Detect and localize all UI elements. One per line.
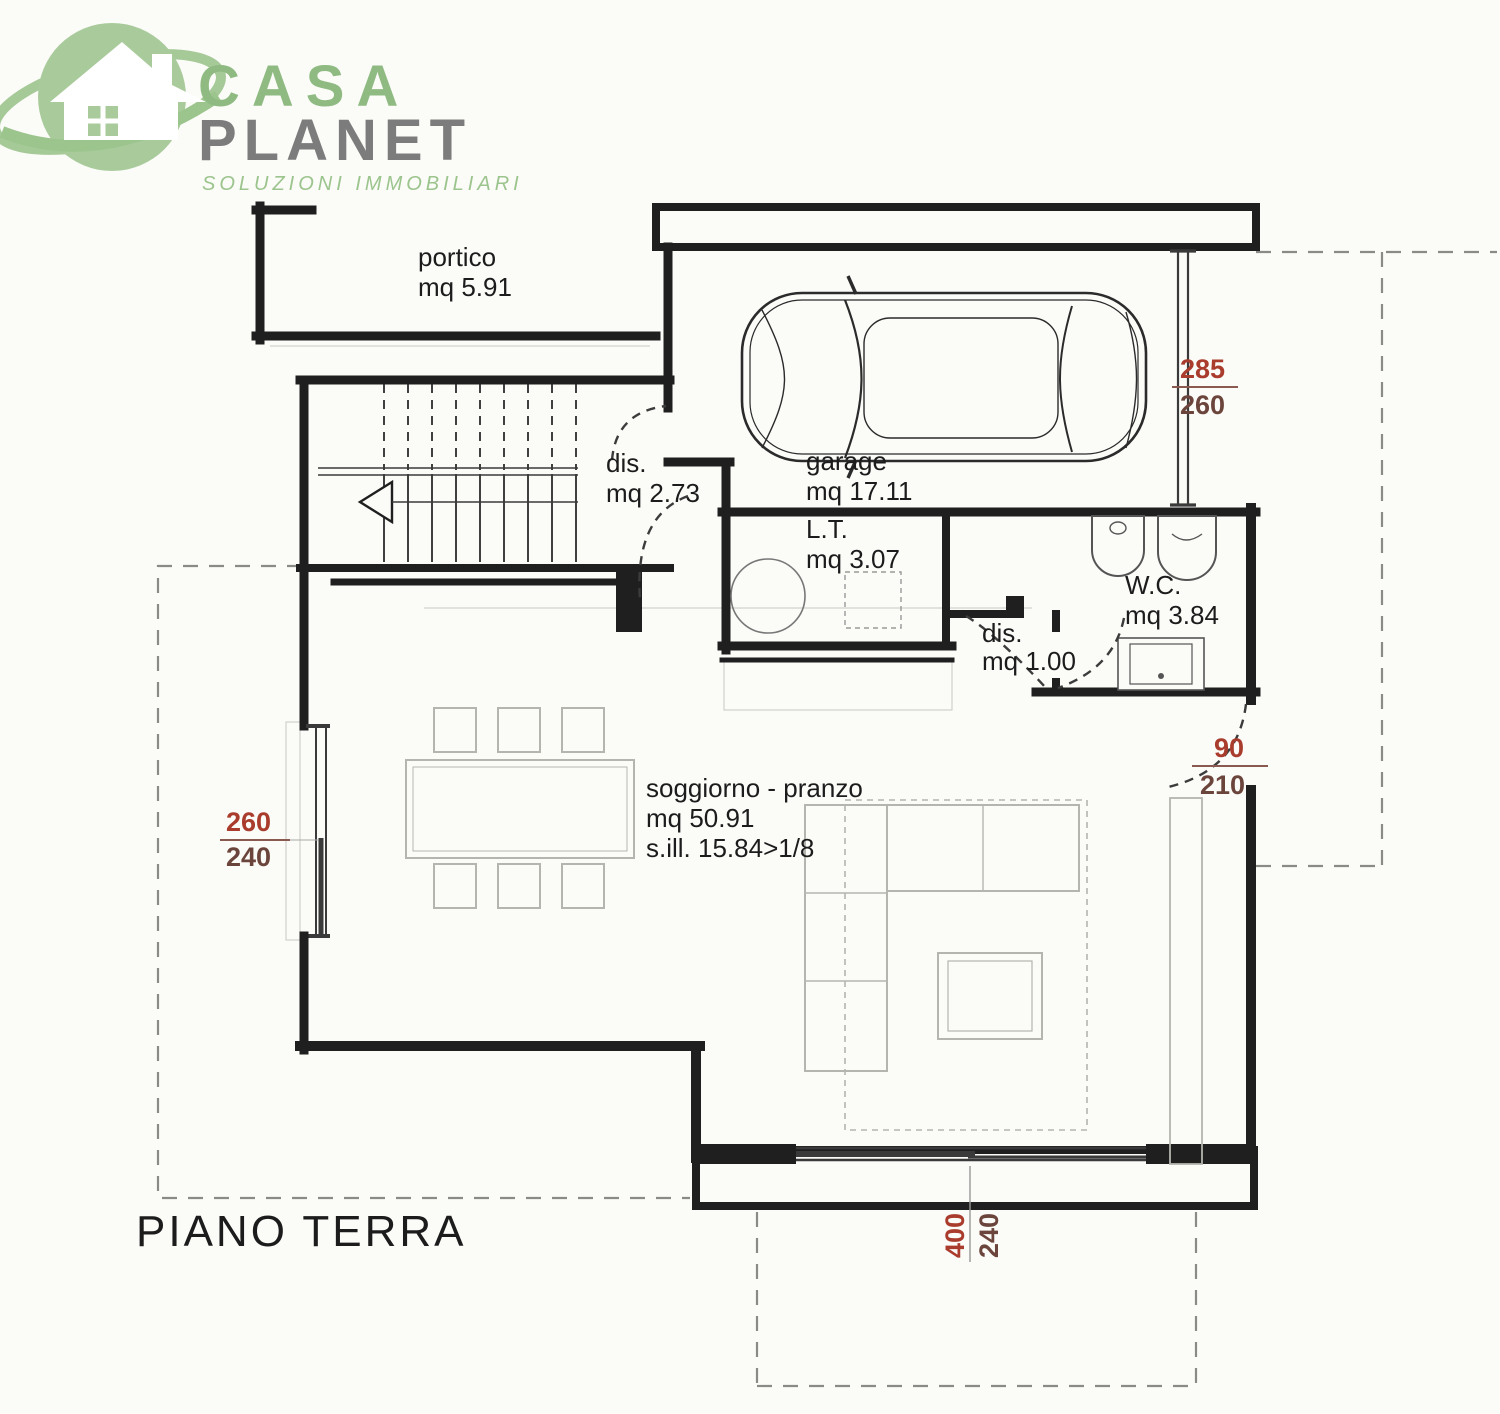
svg-text:mq 3.84: mq 3.84 — [1125, 600, 1219, 630]
car-top-view — [742, 276, 1146, 478]
svg-text:mq 3.07: mq 3.07 — [806, 544, 900, 574]
dim-value: 260 — [226, 807, 271, 837]
svg-text:mq 5.91: mq 5.91 — [418, 272, 512, 302]
living-set — [805, 798, 1202, 1164]
room-label-dis2: dis. mq 1.00 — [982, 618, 1076, 676]
casa-planet-logo: CASA PLANET SOLUZIONI IMMOBILIARI — [0, 23, 523, 195]
room-label-garage: garage mq 17.11 — [806, 446, 912, 506]
dim-garage-door: 285 260 — [1172, 354, 1238, 420]
chair — [498, 708, 540, 752]
room-label-soggiorno: soggiorno - pranzo mq 50.91 s.ill. 15.84… — [646, 773, 863, 863]
coffee-table — [938, 953, 1042, 1039]
room-label-lt: L.T. mq 3.07 — [806, 514, 900, 574]
dim-bottom-window: 400 240 — [940, 1166, 1004, 1262]
scanned-floor-plan-page: CASA PLANET SOLUZIONI IMMOBILIARI — [0, 0, 1500, 1414]
logo-planet-text: PLANET — [198, 108, 472, 173]
dining-set — [406, 708, 634, 908]
staircase — [318, 384, 578, 562]
chair — [562, 708, 604, 752]
chair — [498, 864, 540, 908]
dim-value: 260 — [1180, 390, 1225, 420]
svg-text:s.ill. 15.84>1/8: s.ill. 15.84>1/8 — [646, 833, 814, 863]
dim-value: 285 — [1180, 354, 1225, 384]
dim-value: 210 — [1200, 770, 1245, 800]
dim-value: 240 — [226, 842, 271, 872]
svg-text:mq 2.73: mq 2.73 — [606, 478, 700, 508]
room-label-dis1: dis. mq 2.73 — [606, 448, 700, 508]
svg-text:mq 17.11: mq 17.11 — [806, 476, 912, 506]
dim-right-door: 90 210 — [1192, 733, 1268, 800]
svg-text:soggiorno - pranzo: soggiorno - pranzo — [646, 773, 863, 803]
svg-text:L.T.: L.T. — [806, 514, 848, 544]
svg-text:mq 50.91: mq 50.91 — [646, 803, 754, 833]
svg-text:dis.: dis. — [606, 448, 646, 478]
floor-title: PIANO TERRA — [136, 1207, 466, 1256]
room-label-portico: portico mq 5.91 — [418, 242, 512, 302]
boiler-icon — [731, 559, 805, 633]
rug — [845, 800, 1087, 1130]
svg-text:dis.: dis. — [982, 618, 1022, 648]
dining-table — [406, 760, 634, 858]
svg-text:W.C.: W.C. — [1125, 570, 1181, 600]
dim-value: 400 — [940, 1213, 970, 1258]
sink-icon — [1118, 638, 1204, 690]
stair-direction-arrow — [360, 482, 578, 522]
dim-value: 90 — [1214, 733, 1244, 763]
sofa — [805, 805, 1079, 1071]
chair — [562, 864, 604, 908]
tv-cabinet — [1170, 798, 1202, 1164]
room-label-wc: W.C. mq 3.84 — [1125, 570, 1219, 630]
svg-text:portico: portico — [418, 242, 496, 272]
floor-plan-canvas: CASA PLANET SOLUZIONI IMMOBILIARI — [0, 0, 1500, 1414]
dim-left-window: 260 240 — [220, 807, 318, 872]
logo-tagline: SOLUZIONI IMMOBILIARI — [202, 173, 523, 195]
walls — [256, 206, 1256, 1206]
door-swing-arc — [639, 496, 688, 600]
chair — [434, 864, 476, 908]
svg-text:garage: garage — [806, 446, 887, 476]
chair — [434, 708, 476, 752]
dim-value: 240 — [974, 1213, 1004, 1258]
planet-icon — [0, 23, 230, 171]
svg-text:mq 1.00: mq 1.00 — [982, 646, 1076, 676]
